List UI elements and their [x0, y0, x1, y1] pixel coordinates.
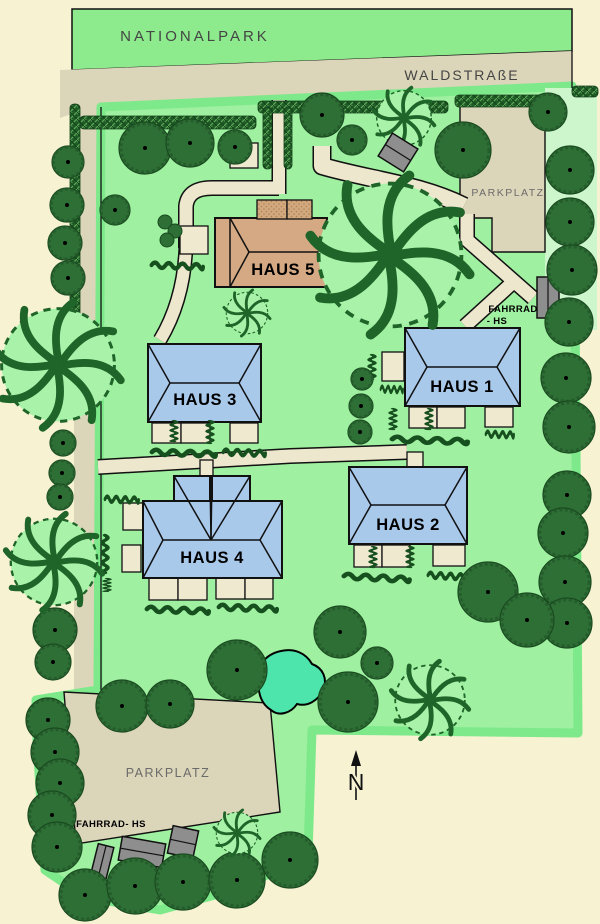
terrace [245, 578, 273, 599]
tree-icon [47, 484, 73, 510]
tree-icon [435, 122, 491, 178]
tree-icon [96, 680, 148, 732]
tree-icon [351, 368, 373, 390]
tree-icon [300, 93, 344, 137]
tree-icon [49, 460, 75, 486]
tree-icon [348, 420, 372, 444]
tree-icon [59, 869, 111, 921]
tree-icon [337, 125, 367, 155]
fahrrad-north-label-line2: - HS [487, 316, 508, 327]
terrace [437, 407, 465, 428]
roof-ridge-line [211, 476, 212, 540]
haus-5-annex [287, 200, 312, 219]
tree-icon [52, 146, 84, 178]
tree-icon [35, 644, 71, 680]
tree-icon [543, 401, 595, 453]
tree-icon [500, 593, 554, 647]
tree-icon [48, 226, 82, 260]
haus-4-label: HAUS 4 [180, 549, 244, 567]
haus-4-annex [174, 476, 210, 501]
hedge-icon [284, 107, 292, 169]
terrace [433, 545, 465, 566]
tree-icon [218, 130, 252, 164]
terrace [485, 407, 513, 427]
hedge-icon [80, 116, 256, 129]
hedge-icon [572, 86, 598, 97]
tree-icon [100, 195, 130, 225]
fahrrad-north-label-line1: FAHRRAD [488, 304, 537, 315]
haus-3-label: HAUS 3 [173, 391, 237, 409]
hedge-icon [263, 107, 272, 169]
terrace [123, 503, 143, 530]
terrace [180, 226, 208, 254]
tree-icon [166, 119, 214, 167]
haus-1-label: HAUS 1 [430, 378, 494, 396]
bush-icon [160, 233, 174, 247]
waldstrasse-label: WALDSTRAßE [404, 67, 519, 83]
tree-icon [545, 298, 593, 346]
tree-icon [546, 198, 594, 246]
north-label: N [348, 769, 365, 795]
tree-icon [146, 680, 194, 728]
parkplatz-north-label: PARKPLATZ [471, 187, 544, 199]
haus-2-label: HAUS 2 [376, 516, 440, 534]
tree-icon [209, 852, 265, 908]
tree-icon [51, 261, 85, 295]
parkplatz-south-label: PARKPLATZ [126, 766, 211, 780]
tree-icon [50, 430, 76, 456]
terrace [216, 578, 245, 599]
terrace [407, 452, 423, 468]
haus-1-building: HAUS 1 [405, 328, 520, 406]
tree-icon [50, 188, 84, 222]
terrace [122, 545, 141, 572]
terrace [382, 352, 404, 381]
tree-icon [262, 832, 318, 888]
site-plan-map: HAUS 5HAUS 1HAUS 3HAUS 2HAUS 4 NATIONALP… [0, 0, 600, 924]
tree-icon [541, 353, 591, 403]
tree-icon [546, 146, 594, 194]
tree-icon [349, 394, 373, 418]
tree-icon [155, 854, 211, 910]
tree-icon [547, 245, 597, 295]
terrace [354, 545, 382, 567]
tree-icon [529, 93, 567, 131]
tree-icon [119, 122, 171, 174]
terrace [230, 423, 258, 443]
terrace [149, 578, 178, 600]
haus-3-building: HAUS 3 [148, 344, 261, 422]
haus-2-building: HAUS 2 [349, 467, 467, 544]
tree-icon [32, 822, 82, 872]
fahrrad-south-label: FAHRRAD- HS [76, 819, 146, 830]
nationalpark-label: NATIONALPARK [120, 28, 270, 45]
tree-icon [107, 858, 163, 914]
site-plan-page: HAUS 5HAUS 1HAUS 3HAUS 2HAUS 4 NATIONALP… [0, 0, 600, 924]
tree-icon [318, 672, 378, 732]
terrace [178, 578, 207, 600]
tree-icon [207, 640, 267, 700]
tree-icon [538, 508, 588, 558]
tree-icon [361, 647, 393, 679]
tree-icon [314, 606, 366, 658]
haus-5-label: HAUS 5 [251, 261, 315, 279]
haus-5-annex [257, 200, 287, 219]
haus-4-annex [212, 476, 250, 501]
